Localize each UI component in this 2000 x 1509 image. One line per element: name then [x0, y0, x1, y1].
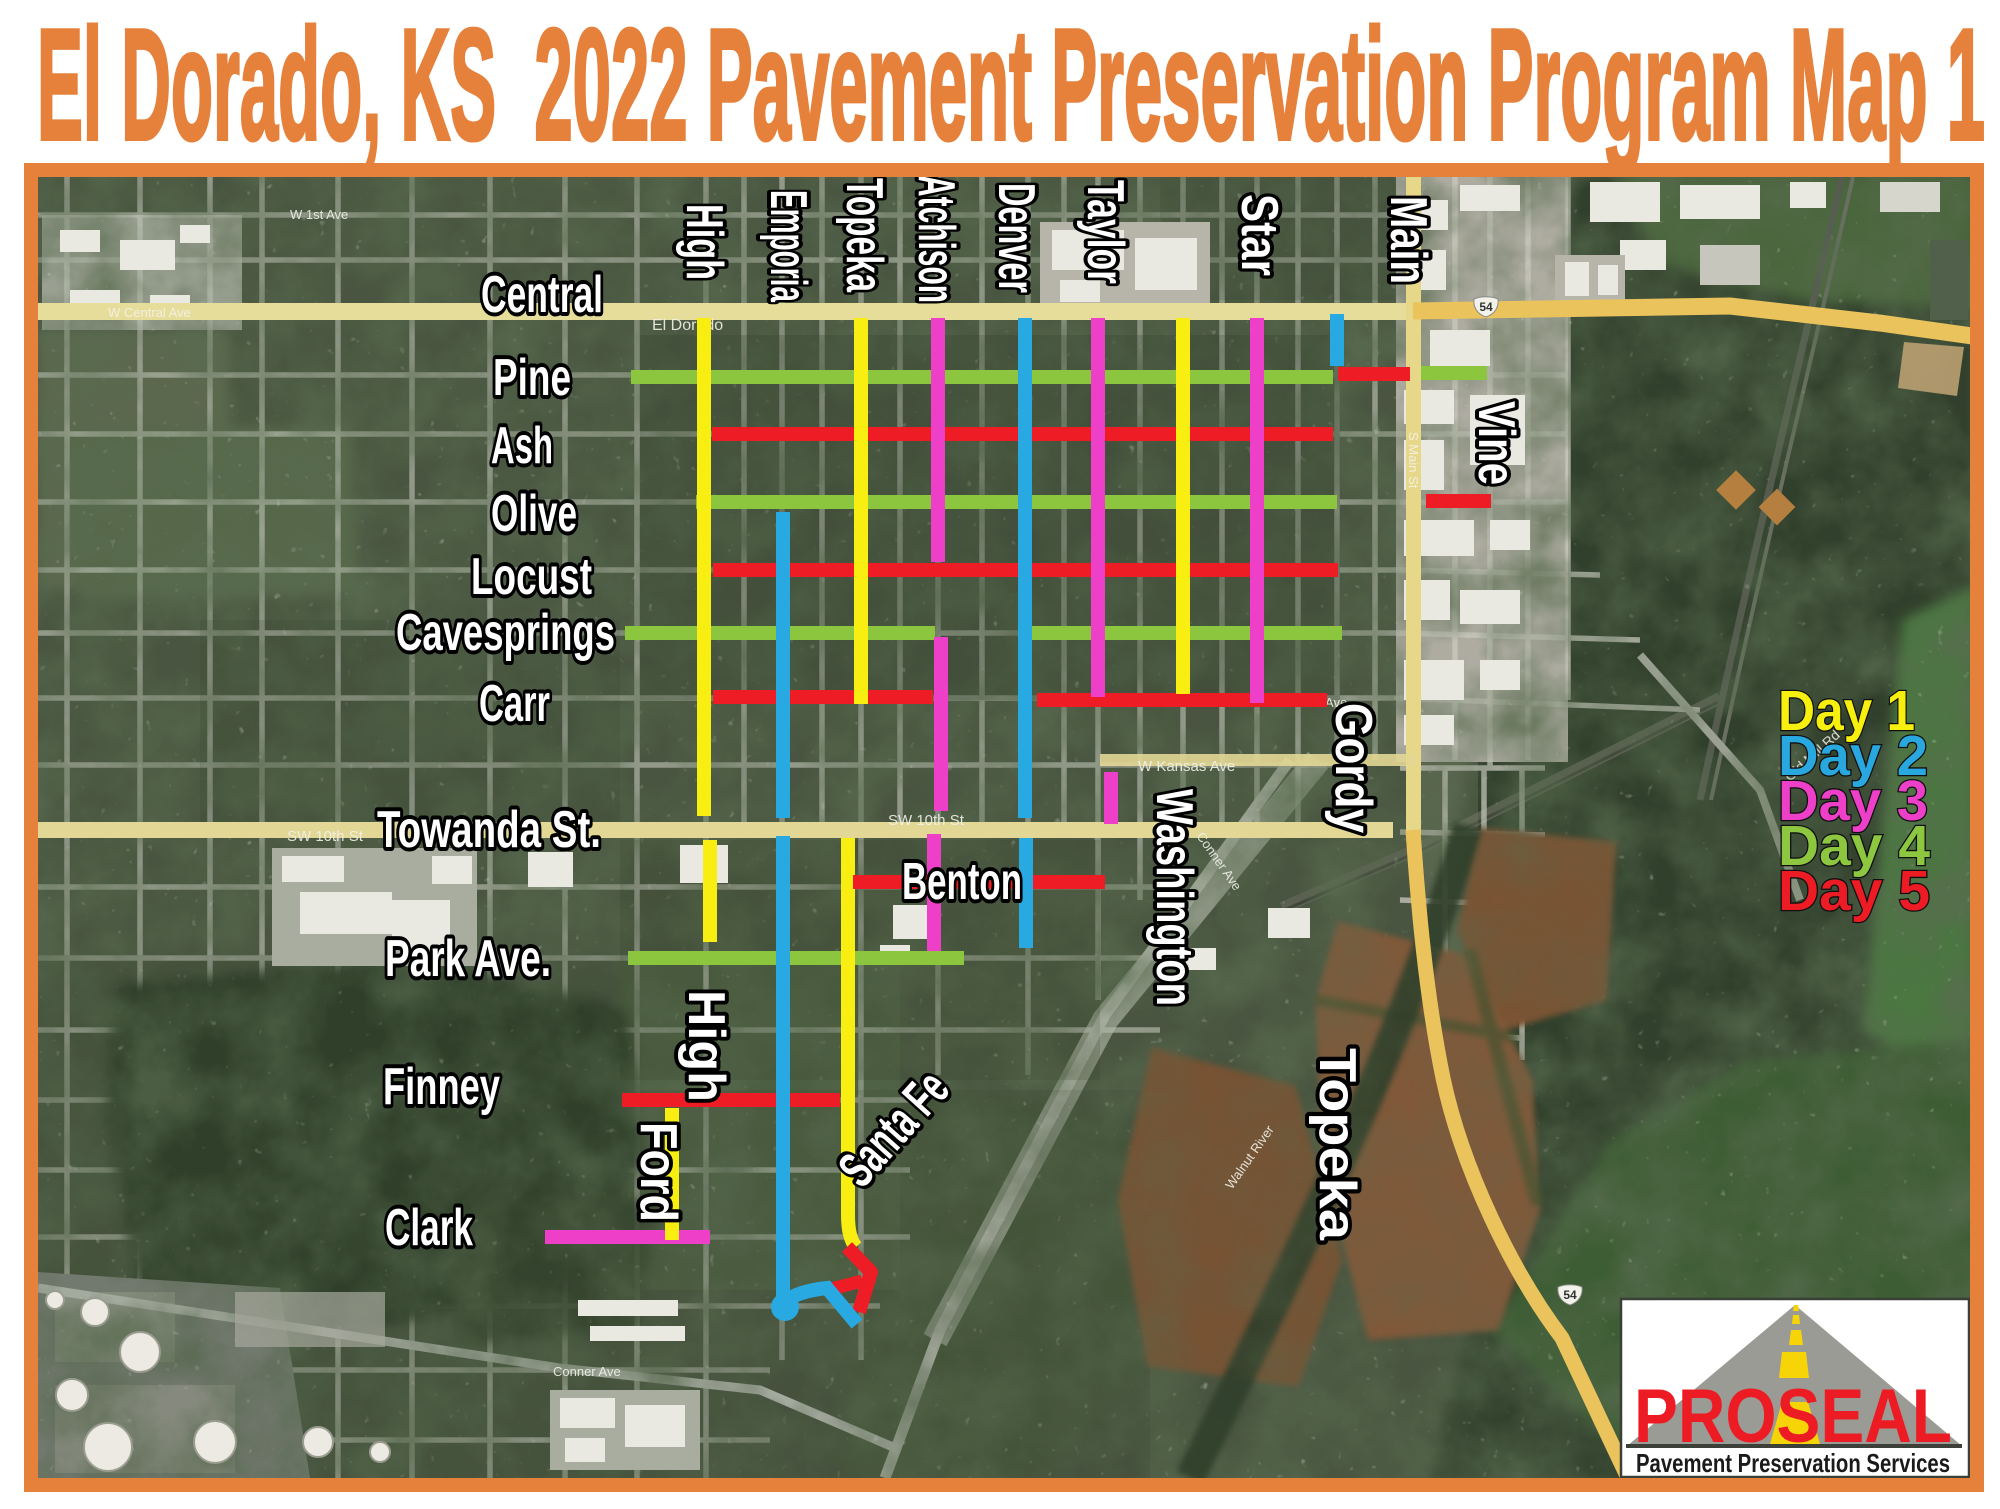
- svg-text:SW 10th St: SW 10th St: [888, 812, 965, 829]
- svg-text:54: 54: [1563, 1288, 1577, 1302]
- svg-text:Ford: Ford: [629, 1122, 687, 1222]
- svg-text:High: High: [675, 204, 733, 280]
- svg-text:PROSEAL: PROSEAL: [1634, 1374, 1952, 1459]
- svg-text:Ash: Ash: [491, 417, 553, 475]
- svg-text:Towanda St.: Towanda St.: [377, 801, 601, 859]
- svg-text:High: High: [677, 990, 735, 1102]
- svg-text:Atchison: Atchison: [907, 175, 965, 303]
- svg-text:Conner Ave: Conner Ave: [553, 1364, 621, 1379]
- svg-text:Central: Central: [481, 266, 603, 324]
- svg-text:Carr: Carr: [479, 675, 550, 733]
- svg-text:W Kansas Ave: W Kansas Ave: [1138, 758, 1235, 775]
- svg-text:54: 54: [1479, 300, 1493, 314]
- svg-text:Clark: Clark: [385, 1199, 473, 1257]
- svg-text:Emporia: Emporia: [759, 190, 817, 303]
- svg-text:SW 10th St: SW 10th St: [287, 828, 364, 845]
- svg-text:Olive: Olive: [491, 485, 577, 543]
- svg-text:Washington: Washington: [1145, 789, 1203, 1006]
- svg-text:El Dorado: El Dorado: [652, 317, 723, 334]
- svg-text:Star: Star: [1230, 194, 1288, 276]
- svg-text:El Dorado, KS 2022 Pavement P: El Dorado, KS 2022 Pavement Preservation…: [37, 0, 1985, 173]
- svg-text:Locust: Locust: [471, 548, 592, 606]
- svg-text:Day 5: Day 5: [1778, 859, 1930, 923]
- svg-text:Topeka: Topeka: [835, 178, 893, 293]
- svg-text:Benton: Benton: [902, 853, 1022, 911]
- svg-text:S Main St: S Main St: [1406, 432, 1421, 489]
- svg-text:Park Ave.: Park Ave.: [385, 930, 551, 988]
- svg-text:W Central Ave: W Central Ave: [108, 305, 191, 320]
- svg-text:Cavesprings: Cavesprings: [396, 604, 615, 662]
- svg-text:Finney: Finney: [383, 1058, 500, 1116]
- svg-text:Denver: Denver: [987, 183, 1045, 293]
- svg-text:Vine: Vine: [1467, 401, 1525, 485]
- svg-text:Topeka: Topeka: [1308, 1048, 1366, 1241]
- svg-text:Gordy: Gordy: [1324, 703, 1382, 833]
- svg-text:Pine: Pine: [493, 349, 571, 407]
- svg-text:Taylor: Taylor: [1076, 180, 1134, 284]
- svg-text:Pavement Preservation Services: Pavement Preservation Services: [1636, 1448, 1950, 1478]
- svg-text:Main: Main: [1379, 196, 1437, 284]
- svg-text:W 1st Ave: W 1st Ave: [290, 207, 348, 222]
